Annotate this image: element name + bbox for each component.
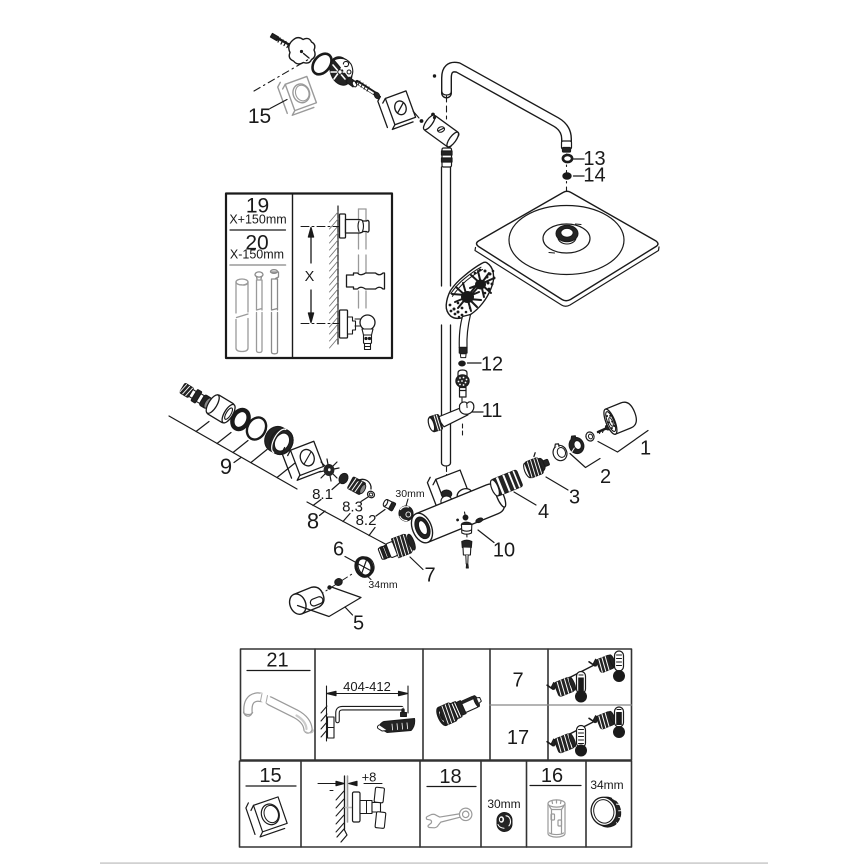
svg-text:30mm: 30mm (487, 797, 520, 811)
svg-text:3: 3 (569, 487, 580, 509)
svg-text:8.2: 8.2 (356, 512, 377, 529)
svg-text:5: 5 (353, 613, 364, 635)
svg-text:21: 21 (266, 650, 288, 672)
svg-text:1: 1 (640, 438, 651, 460)
svg-text:X-150mm: X-150mm (230, 248, 284, 262)
svg-text:6: 6 (333, 539, 344, 561)
svg-text:11: 11 (482, 400, 503, 422)
svg-text:14: 14 (583, 165, 605, 187)
svg-text:8: 8 (307, 509, 319, 534)
svg-text:+8: +8 (362, 770, 377, 785)
svg-text:9: 9 (220, 454, 232, 479)
svg-text:16: 16 (541, 765, 563, 787)
svg-text:34mm: 34mm (590, 778, 623, 792)
svg-text:7: 7 (424, 565, 435, 587)
svg-text:30mm: 30mm (395, 488, 424, 500)
svg-text:15: 15 (259, 765, 281, 787)
svg-text:4: 4 (538, 501, 549, 523)
svg-text:34mm: 34mm (368, 579, 397, 591)
svg-text:404-412: 404-412 (343, 679, 391, 694)
svg-text:17: 17 (507, 727, 529, 749)
svg-text:X: X (305, 269, 315, 285)
svg-text:8.1: 8.1 (312, 486, 333, 503)
svg-text:10: 10 (493, 540, 515, 562)
svg-text:7: 7 (512, 670, 523, 692)
svg-text:18: 18 (439, 766, 461, 788)
svg-text:12: 12 (481, 354, 503, 376)
svg-text:15: 15 (248, 105, 271, 128)
svg-text:X+150mm: X+150mm (229, 213, 286, 227)
svg-text:2: 2 (600, 466, 611, 488)
